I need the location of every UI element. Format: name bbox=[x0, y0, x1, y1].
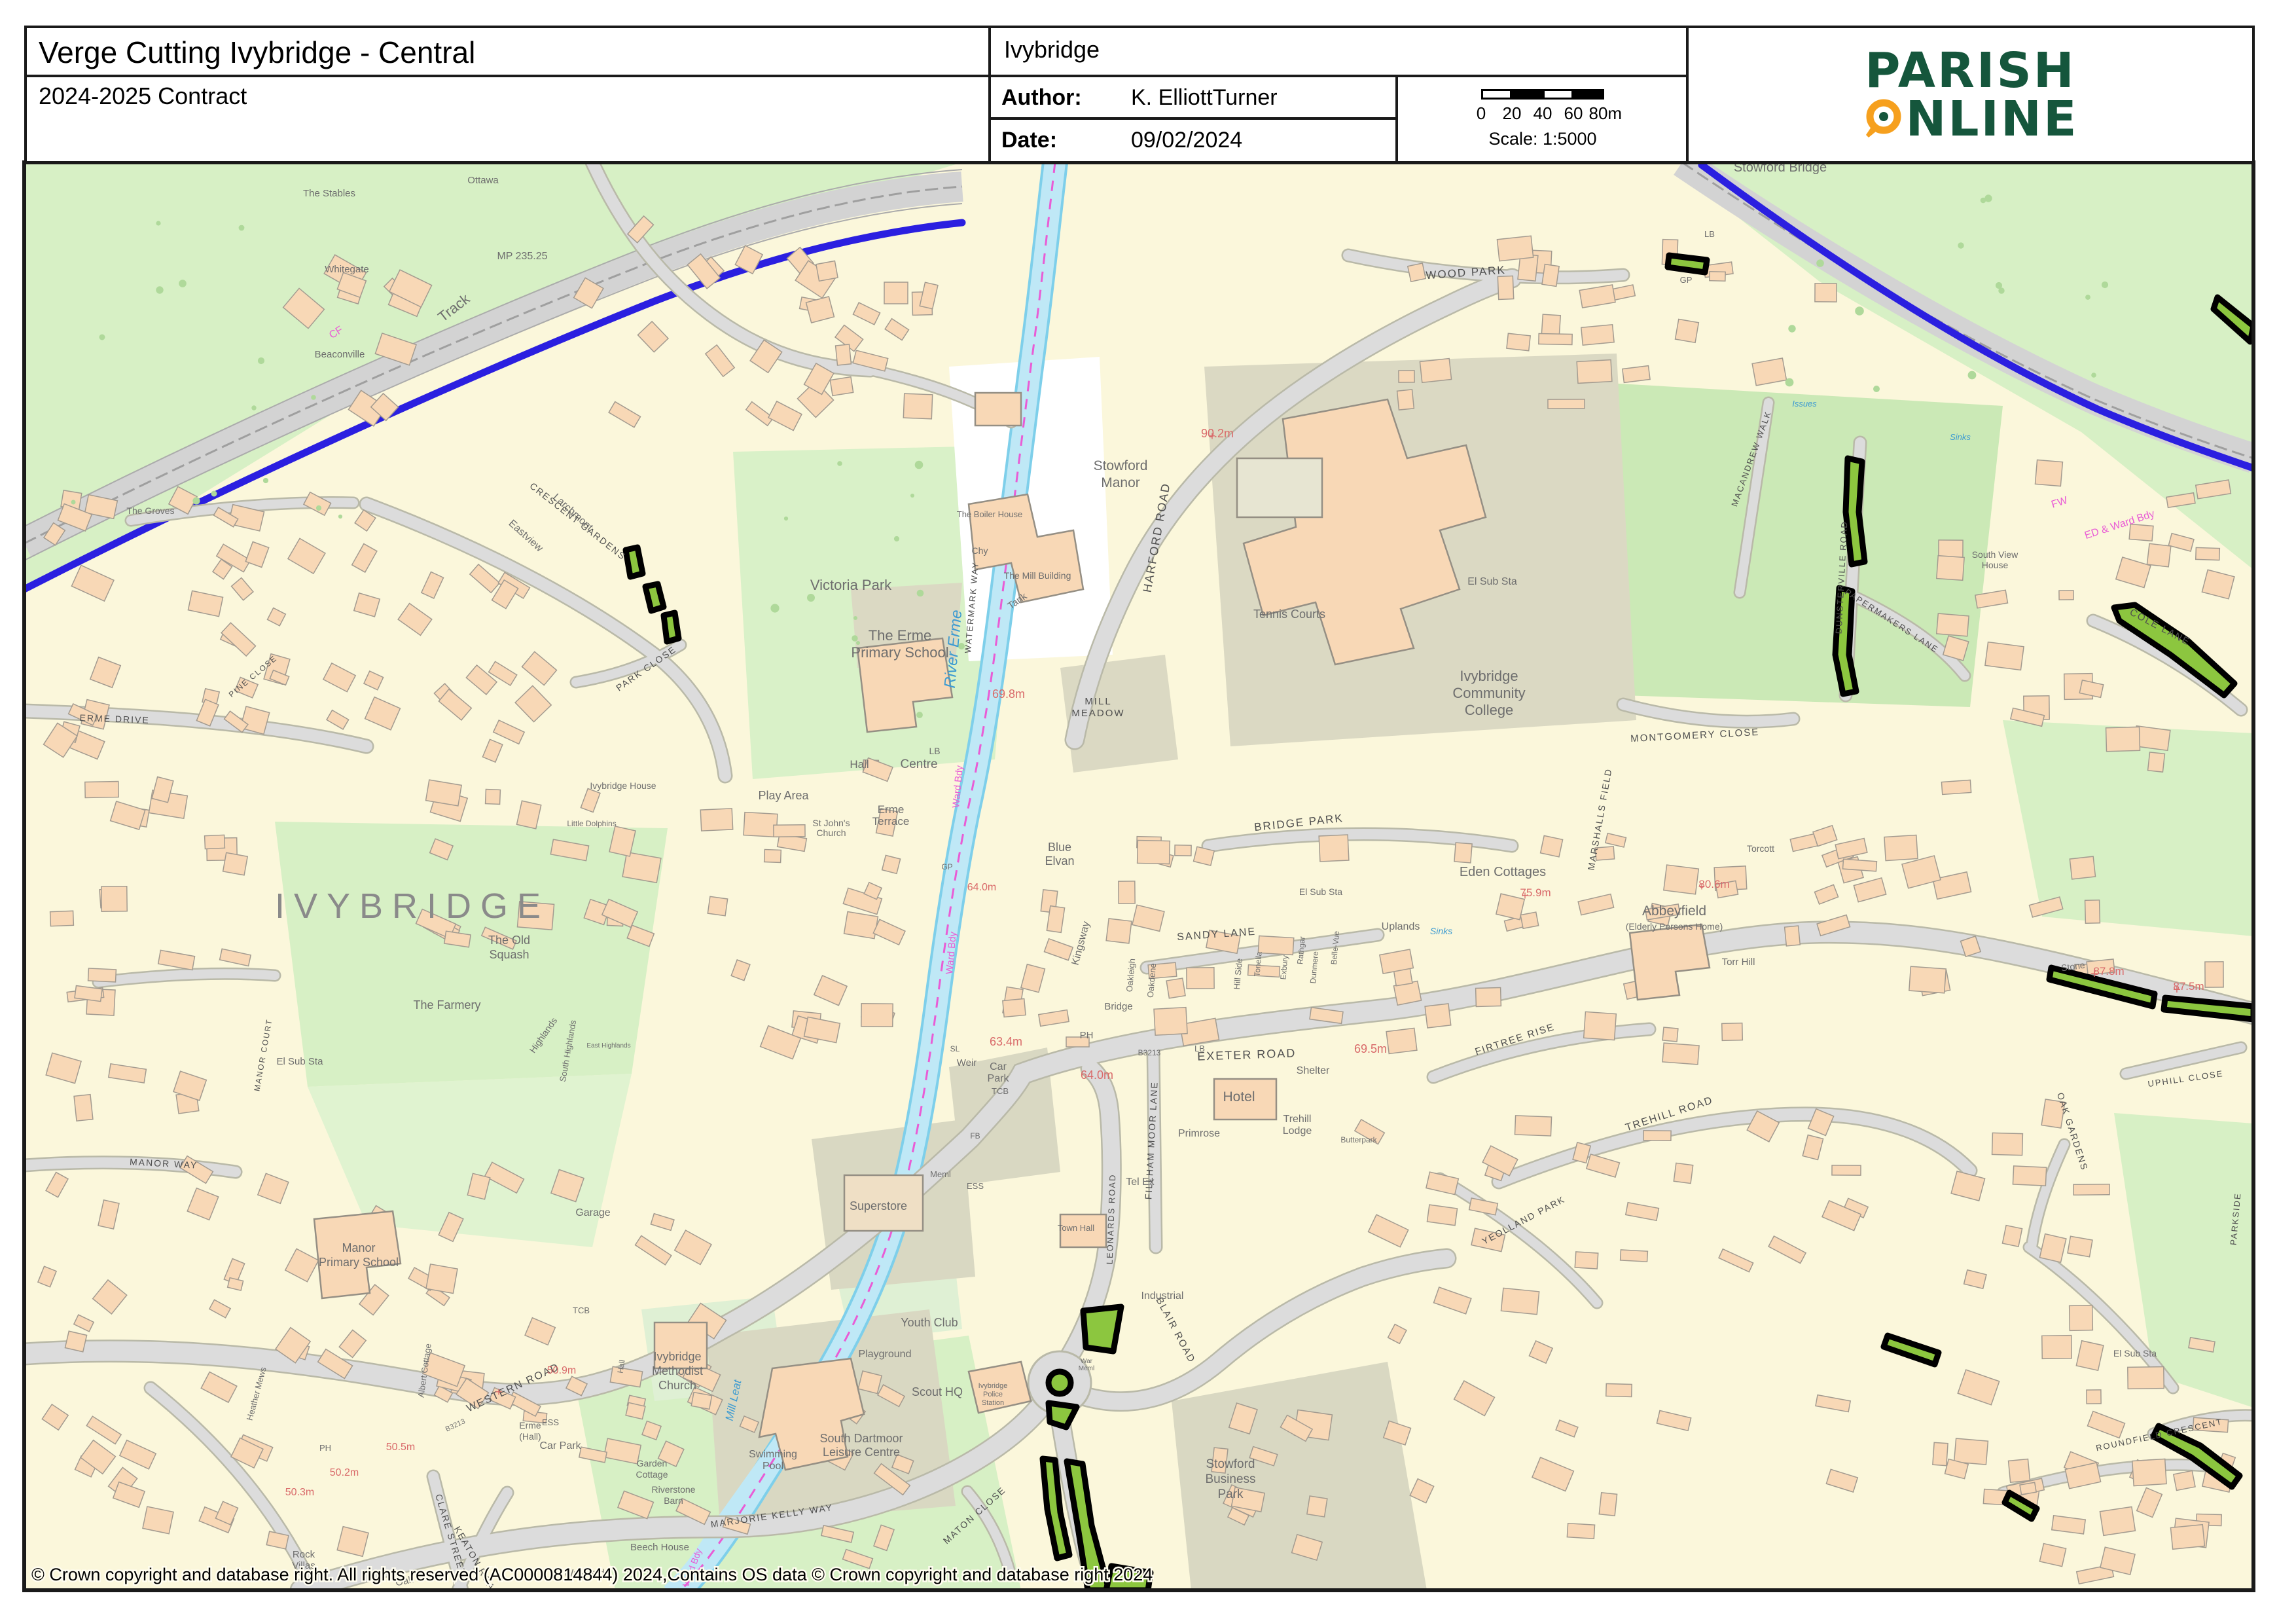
building bbox=[50, 911, 74, 926]
map-label: The Mill Building bbox=[1004, 570, 1071, 581]
map-label: PH bbox=[1080, 1030, 1094, 1041]
tree-dot bbox=[156, 286, 163, 293]
building bbox=[816, 261, 838, 282]
map-label: The Farmery bbox=[413, 998, 480, 1012]
map-label: Rock bbox=[293, 1549, 315, 1560]
building bbox=[2132, 1459, 2166, 1486]
building bbox=[1909, 966, 1946, 993]
map-label: Abbeyfield bbox=[1642, 903, 1706, 919]
map-label: B3213 bbox=[1138, 1048, 1161, 1057]
scale-segment bbox=[1573, 89, 1604, 100]
building bbox=[1476, 987, 1501, 1006]
building bbox=[1539, 333, 1572, 344]
building bbox=[691, 1393, 711, 1410]
tree-dot bbox=[1816, 259, 1824, 267]
map-label: MILL bbox=[1085, 696, 1111, 707]
building bbox=[2070, 1305, 2093, 1331]
building bbox=[764, 850, 781, 863]
scale-tick: 60 bbox=[1558, 103, 1589, 124]
building bbox=[2002, 1226, 2022, 1247]
tree-dot bbox=[99, 335, 105, 340]
building bbox=[1187, 968, 1214, 989]
map-label: South View bbox=[1972, 549, 2018, 560]
building bbox=[1454, 843, 1472, 863]
building bbox=[1937, 556, 1964, 581]
map-label: 90.2m bbox=[1201, 427, 1234, 440]
map-label: Beaconville bbox=[315, 349, 365, 360]
tree-dot bbox=[852, 635, 857, 641]
map-label: Issues bbox=[1792, 399, 1817, 409]
map-label: Superstore bbox=[850, 1199, 907, 1213]
map-label: Blue bbox=[1048, 841, 1071, 854]
copyright-text: © Crown copyright and database right. Al… bbox=[31, 1565, 1153, 1584]
map-label: Manor bbox=[1101, 475, 1140, 490]
map-label: Business bbox=[1205, 1472, 1255, 1486]
map-label: + bbox=[2090, 967, 2098, 981]
map-label: 63.4m bbox=[990, 1035, 1022, 1048]
map-label: Town Hall bbox=[1058, 1223, 1094, 1233]
area-name: Ivybridge bbox=[988, 26, 1689, 79]
building bbox=[1584, 1012, 1617, 1040]
map-label: The Groves bbox=[126, 505, 174, 516]
map-label: Primary School bbox=[851, 644, 948, 661]
tree-dot bbox=[770, 604, 779, 612]
tree-dot bbox=[2085, 295, 2090, 300]
map-label: 69.5m bbox=[1354, 1042, 1387, 1055]
building bbox=[1937, 613, 1969, 636]
tree-dot bbox=[784, 517, 788, 520]
map-label: 50.3m bbox=[285, 1487, 314, 1498]
map-label: Ivybridge bbox=[653, 1350, 701, 1363]
tree-dot bbox=[917, 590, 924, 597]
building bbox=[426, 1264, 457, 1294]
map-label: IVYBRIDGE bbox=[275, 886, 550, 926]
building bbox=[1941, 780, 1971, 794]
building bbox=[1815, 283, 1837, 302]
building bbox=[1842, 859, 1876, 871]
tree-dot bbox=[2102, 282, 2108, 288]
map-label: Car Park bbox=[539, 1440, 581, 1451]
tree-dot bbox=[1785, 378, 1794, 387]
tree-dot bbox=[179, 280, 187, 287]
tree-dot bbox=[2091, 373, 2096, 378]
tree-dot bbox=[156, 221, 160, 225]
map-label: Car bbox=[990, 1061, 1007, 1072]
map-label: Eden Cottages bbox=[1460, 865, 1546, 879]
map-label: Stowford bbox=[1094, 458, 1148, 473]
map-label: El Sub Sta bbox=[1299, 886, 1342, 897]
building bbox=[205, 835, 225, 848]
author-row: Author: K. ElliottTurner bbox=[988, 75, 1399, 121]
map-label: Sinks bbox=[1950, 432, 1971, 442]
building bbox=[2087, 1390, 2101, 1404]
tree-dot bbox=[251, 405, 256, 410]
building bbox=[1319, 835, 1349, 862]
building bbox=[1154, 1008, 1187, 1036]
map-label: Uplands bbox=[1382, 921, 1420, 932]
verge-cutting-area bbox=[645, 584, 664, 611]
building bbox=[1497, 236, 1533, 261]
building bbox=[2205, 962, 2223, 987]
map-label: Ivybridge bbox=[978, 1382, 1008, 1390]
verge-cutting-area bbox=[1083, 1307, 1121, 1351]
building bbox=[1621, 1250, 1648, 1262]
building bbox=[2020, 1482, 2036, 1495]
building bbox=[861, 1004, 893, 1027]
building bbox=[143, 1506, 173, 1534]
scale-tick: 80m bbox=[1589, 103, 1620, 124]
map-label: Pool bbox=[762, 1461, 783, 1472]
map-label: Church bbox=[816, 828, 846, 838]
building bbox=[1992, 1133, 2023, 1155]
building bbox=[1676, 319, 1699, 342]
map-label: College bbox=[1465, 702, 1514, 718]
tree-dot bbox=[258, 357, 264, 364]
map-label: Trehill bbox=[1283, 1114, 1312, 1125]
building bbox=[1623, 366, 1650, 383]
map-label: War bbox=[1081, 1358, 1093, 1365]
map-label: GP bbox=[941, 862, 952, 871]
building bbox=[1397, 390, 1414, 410]
map-label: Little Dolphins bbox=[567, 819, 616, 828]
building bbox=[2009, 1459, 2030, 1483]
map-label: Station bbox=[982, 1399, 1004, 1407]
building bbox=[223, 852, 248, 875]
map-export-page: IVYBRIDGETrackMP 235.25CFStowford Bridge… bbox=[0, 0, 2296, 1623]
logo-word-parish: PARISH bbox=[1865, 46, 2075, 95]
building bbox=[101, 886, 127, 911]
map-label: TCB bbox=[992, 1086, 1009, 1096]
tree-dot bbox=[1855, 306, 1864, 316]
building bbox=[1520, 912, 1539, 928]
tree-dot bbox=[853, 616, 857, 620]
scale-tick: 40 bbox=[1528, 103, 1558, 124]
map-label: The Boiler House bbox=[957, 509, 1022, 519]
map-label: 50.2m bbox=[330, 1467, 359, 1478]
map-label: Park bbox=[1217, 1487, 1244, 1501]
building bbox=[708, 896, 727, 916]
map-label: LB bbox=[1194, 1044, 1205, 1053]
map-label: Garden bbox=[637, 1458, 668, 1468]
map-label: (Hall) bbox=[519, 1431, 541, 1442]
building bbox=[1420, 359, 1451, 383]
tree-dot bbox=[316, 505, 321, 511]
building bbox=[486, 790, 501, 805]
map-subtitle: 2024-2025 Contract bbox=[24, 75, 992, 164]
building bbox=[1832, 1165, 1861, 1175]
building bbox=[1399, 371, 1414, 382]
building bbox=[2042, 1336, 2072, 1359]
map-label: Victoria Park bbox=[810, 577, 892, 593]
map-label: Riverstone bbox=[652, 1484, 696, 1495]
building bbox=[1662, 1027, 1678, 1042]
verge-cutting-area bbox=[626, 547, 643, 577]
scale-box: 020406080m Scale: 1:5000 bbox=[1395, 75, 1690, 164]
scale-segment bbox=[1481, 89, 1512, 100]
parish-online-logo: PARISH NLINE bbox=[1686, 26, 2255, 164]
map-label: House bbox=[1982, 560, 2009, 570]
building bbox=[1643, 1131, 1671, 1141]
building bbox=[2148, 752, 2165, 772]
map-label: St John's bbox=[812, 818, 850, 828]
building bbox=[1119, 881, 1135, 903]
map-label: El Sub Sta bbox=[2113, 1348, 2157, 1359]
map-label: Community bbox=[1452, 685, 1525, 701]
tree-dot bbox=[894, 536, 899, 541]
building bbox=[2196, 547, 2220, 560]
building bbox=[1954, 1438, 1988, 1465]
building bbox=[2073, 1184, 2109, 1195]
map-label: Primrose bbox=[1178, 1128, 1220, 1139]
building bbox=[1498, 276, 1513, 300]
verge-cutting-area bbox=[1049, 1372, 1071, 1394]
map-label: Tennis Courts bbox=[1253, 608, 1325, 621]
tree-dot bbox=[192, 497, 200, 504]
map-label: Weir bbox=[957, 1057, 977, 1068]
building bbox=[1425, 1004, 1451, 1028]
building bbox=[74, 1095, 93, 1121]
building bbox=[744, 812, 778, 837]
scale-tick-labels: 020406080m bbox=[1466, 103, 1620, 124]
map-label: Park bbox=[988, 1073, 1010, 1084]
tree-dot bbox=[1788, 325, 1795, 332]
building bbox=[1664, 865, 1698, 894]
building bbox=[1501, 1288, 1539, 1314]
scale-segment bbox=[1543, 89, 1573, 100]
building bbox=[1258, 936, 1293, 955]
building bbox=[882, 855, 901, 873]
tree-dot bbox=[338, 515, 342, 519]
building bbox=[1175, 845, 1191, 856]
tree-dot bbox=[837, 461, 842, 466]
map-label: Terrace bbox=[872, 815, 910, 828]
building bbox=[2035, 460, 2062, 486]
map-label: Cottage bbox=[636, 1469, 668, 1480]
building bbox=[844, 911, 878, 938]
verge-cutting-area bbox=[664, 613, 679, 642]
building bbox=[1515, 1116, 1551, 1136]
map-label: Beech House bbox=[630, 1542, 689, 1553]
building bbox=[830, 377, 853, 396]
building bbox=[1166, 978, 1185, 998]
map-label: Shelter bbox=[1297, 1065, 1330, 1076]
map-label: + bbox=[1209, 429, 1216, 443]
logo-online-text: NLINE bbox=[1905, 95, 2078, 143]
map-label: Ivybridge bbox=[1460, 668, 1518, 684]
map-label: The Stables bbox=[303, 188, 355, 199]
building bbox=[1581, 325, 1614, 345]
map-label: + bbox=[1522, 889, 1529, 902]
building bbox=[1106, 919, 1132, 943]
building bbox=[2068, 1236, 2092, 1256]
building bbox=[2100, 1506, 2135, 1535]
building bbox=[2128, 1367, 2164, 1389]
building bbox=[88, 968, 117, 982]
building bbox=[85, 782, 118, 798]
map-label: Police bbox=[983, 1391, 1003, 1398]
map-label: The Old bbox=[488, 934, 530, 947]
building bbox=[2174, 1470, 2195, 1490]
magnifier-icon bbox=[1862, 99, 1903, 139]
map-title: Verge Cutting Ivybridge - Central bbox=[24, 26, 992, 79]
map-label: Methodist bbox=[652, 1364, 703, 1377]
map-label: Garage bbox=[575, 1207, 610, 1218]
map-label: Church bbox=[658, 1379, 696, 1392]
building bbox=[2070, 856, 2095, 879]
map-label: LB bbox=[1704, 229, 1715, 239]
tree-dot bbox=[910, 494, 914, 498]
map-label: 50.9m bbox=[547, 1365, 576, 1376]
building bbox=[65, 1331, 86, 1352]
building bbox=[622, 852, 661, 883]
building bbox=[1047, 906, 1064, 933]
map-label: Erme bbox=[878, 803, 905, 816]
building bbox=[884, 282, 908, 304]
map-label: 64.0m bbox=[1081, 1068, 1113, 1082]
map-label: PH bbox=[319, 1443, 331, 1453]
map-label: Chy bbox=[972, 545, 988, 556]
building bbox=[1567, 1523, 1594, 1539]
map-label: Torcott bbox=[1747, 843, 1774, 854]
building bbox=[1542, 264, 1559, 287]
map-label: GP bbox=[1680, 275, 1693, 285]
building bbox=[1785, 926, 1801, 946]
building bbox=[2170, 1525, 2204, 1550]
map-label: Butterpark bbox=[1340, 1135, 1377, 1144]
map-label: Centre bbox=[900, 757, 937, 771]
map-label: Meml bbox=[1079, 1365, 1094, 1372]
map-label: 69.8m bbox=[992, 687, 1025, 701]
map-label: South Dartmoor bbox=[819, 1432, 903, 1445]
map-label: 50.5m bbox=[386, 1442, 415, 1453]
building bbox=[1507, 333, 1530, 350]
building bbox=[1548, 399, 1585, 409]
map-label: Play Area bbox=[758, 789, 809, 802]
map-label: Manor bbox=[342, 1241, 375, 1254]
tree-dot bbox=[1958, 242, 1964, 248]
building bbox=[2106, 727, 2140, 751]
map-label: Tel Ex bbox=[1126, 1176, 1155, 1188]
map-label: (Elderly Persons Home) bbox=[1626, 921, 1723, 932]
building bbox=[1408, 263, 1426, 282]
building bbox=[1386, 1028, 1417, 1053]
date-value: 09/02/2024 bbox=[1122, 128, 1242, 153]
tree-dot bbox=[1873, 386, 1880, 392]
scale-ratio: Scale: 1:5000 bbox=[1488, 129, 1596, 149]
map-label: LB bbox=[929, 746, 940, 756]
map-label: Hotel bbox=[1223, 1089, 1255, 1104]
map-label: Whitegate bbox=[325, 264, 369, 275]
building bbox=[2147, 543, 2170, 567]
building bbox=[1710, 272, 1725, 282]
building bbox=[1662, 1043, 1699, 1065]
scale-segment bbox=[1512, 89, 1543, 100]
map-label: Industrial bbox=[1141, 1290, 1184, 1302]
building bbox=[2085, 900, 2100, 924]
scale-tick: 0 bbox=[1466, 103, 1497, 124]
tree-dot bbox=[263, 478, 268, 483]
map-label: MEADOW bbox=[1071, 708, 1124, 719]
map-label: Leisure Centre bbox=[823, 1446, 900, 1459]
tree-dot bbox=[311, 395, 316, 400]
building bbox=[774, 825, 805, 837]
map-label: TCB bbox=[573, 1305, 590, 1315]
date-label: Date: bbox=[991, 128, 1122, 153]
map-label: Squash bbox=[489, 948, 529, 961]
building bbox=[1577, 360, 1612, 384]
map-label: The Erme bbox=[869, 627, 932, 644]
building bbox=[1722, 1023, 1743, 1041]
tree-dot bbox=[1984, 194, 1992, 202]
map-canvas: IVYBRIDGETrackMP 235.25CFStowford Bridge… bbox=[0, 0, 2296, 1623]
building bbox=[903, 393, 932, 419]
map-label: Elvan bbox=[1045, 854, 1074, 867]
building bbox=[1985, 642, 2024, 670]
building bbox=[2076, 1341, 2104, 1370]
map-label: Stowford bbox=[1206, 1457, 1255, 1471]
map-label: Scout HQ bbox=[912, 1385, 963, 1398]
map-label: ESS bbox=[967, 1181, 984, 1191]
date-row: Date: 09/02/2024 bbox=[988, 117, 1399, 164]
tree-dot bbox=[915, 461, 924, 469]
building bbox=[1599, 1493, 1617, 1516]
map-label: El Sub Sta bbox=[1467, 576, 1517, 587]
building bbox=[2059, 591, 2073, 600]
tree-dot bbox=[1998, 287, 2004, 293]
map-label: Meml bbox=[930, 1169, 951, 1179]
building bbox=[1752, 358, 1786, 386]
map-label: Torr Hill bbox=[1722, 957, 1755, 968]
map-label: East Highlands bbox=[586, 1042, 630, 1049]
map-label: Youth Club bbox=[901, 1316, 958, 1329]
tree-dot bbox=[211, 491, 217, 497]
author-value: K. ElliottTurner bbox=[1122, 85, 1278, 111]
map-label: Sinks bbox=[1430, 926, 1452, 936]
map-label: Barn bbox=[664, 1495, 683, 1506]
scale-bar bbox=[1481, 89, 1604, 100]
building bbox=[1427, 1205, 1457, 1226]
map-label: + bbox=[2173, 983, 2181, 997]
map-label: SL bbox=[950, 1044, 960, 1053]
map-label: Ivybridge House bbox=[590, 780, 656, 791]
map-label: 64.0m bbox=[967, 882, 996, 893]
building bbox=[2013, 1166, 2046, 1186]
building bbox=[2039, 1234, 2066, 1262]
building bbox=[1575, 1252, 1598, 1269]
map-label: Bridge bbox=[1104, 1001, 1132, 1012]
map-label: Playground bbox=[859, 1349, 912, 1360]
building bbox=[700, 809, 732, 831]
tree-dot bbox=[71, 500, 76, 505]
building bbox=[1541, 835, 1563, 856]
map-label: Erme bbox=[519, 1420, 541, 1431]
map-label: MP 235.25 bbox=[497, 251, 547, 262]
building bbox=[1884, 835, 1918, 861]
tree-dot bbox=[1968, 371, 1977, 380]
tree-dot bbox=[807, 594, 815, 602]
scale-tick: 20 bbox=[1497, 103, 1528, 124]
building bbox=[1674, 1163, 1693, 1183]
building bbox=[2129, 524, 2153, 541]
building bbox=[1939, 540, 1963, 558]
building bbox=[836, 344, 852, 365]
map-label: + bbox=[495, 1385, 503, 1398]
building bbox=[1307, 1496, 1327, 1517]
map-label: Hall bbox=[850, 758, 869, 771]
building bbox=[1606, 1383, 1632, 1396]
logo-word-online: NLINE bbox=[1862, 95, 2078, 143]
author-label: Author: bbox=[991, 85, 1122, 111]
